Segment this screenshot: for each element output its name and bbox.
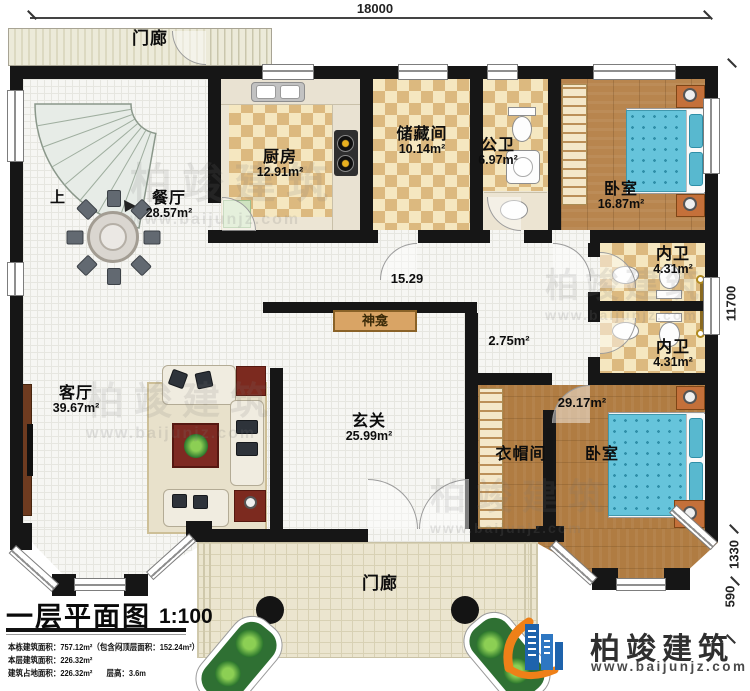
building-stats: 本栋建筑面积：757.12m²（包含闷顶层面积：152.24m²） 本层建筑面积… xyxy=(8,641,199,680)
dining-chair xyxy=(107,190,121,207)
room-label-kitchen: 厨房 12.91m² xyxy=(238,149,322,179)
window xyxy=(703,98,720,174)
bay-window xyxy=(616,578,666,591)
pillow xyxy=(689,152,703,186)
bay-corner xyxy=(124,574,148,596)
room-name: 厨房 xyxy=(238,149,322,166)
kitchen-sink-basin xyxy=(280,85,300,99)
shrine-box: 神龛 xyxy=(333,310,417,332)
stove-burner xyxy=(337,135,354,152)
room-name: 客厅 xyxy=(34,385,118,402)
window xyxy=(593,64,676,80)
lamp-icon xyxy=(683,390,697,404)
wall-corridor-bath xyxy=(588,292,600,322)
cushion xyxy=(236,420,258,434)
brand-logo-icon xyxy=(495,612,573,688)
pillow xyxy=(689,114,703,148)
stats-line-1: 本栋建筑面积：757.12m²（包含闷顶层面积：152.24m²） xyxy=(8,641,199,654)
dimension-right-step: 590 xyxy=(723,567,738,627)
wall-living-foyer xyxy=(270,368,283,542)
wall-kitchen-dining xyxy=(208,79,221,203)
cushion xyxy=(236,442,258,456)
floor-plan-canvas: 神龛 柏竣建筑 www.baijunjz.com 柏竣建筑 www.baijun… xyxy=(0,0,750,691)
room-name: 卧室 xyxy=(579,181,663,198)
stats-height: 层高：3.6m xyxy=(106,668,145,678)
toilet-tank xyxy=(508,107,536,116)
bedroom2-area-label: 29.17m² xyxy=(550,395,614,410)
window xyxy=(487,64,518,80)
porch-column xyxy=(451,596,479,624)
window xyxy=(7,262,24,296)
room-name: 玄关 xyxy=(326,413,412,430)
room-name: 公卫 xyxy=(460,137,536,154)
pillow xyxy=(689,462,703,502)
plant-icon xyxy=(230,624,269,663)
room-label-public-bath: 公卫 6.97m² xyxy=(460,137,536,167)
room-area: 29.17m² xyxy=(558,395,606,410)
window xyxy=(262,64,314,80)
cushion xyxy=(193,495,208,509)
dining-chair xyxy=(107,268,121,285)
niche-area: 2.75m² xyxy=(488,333,529,348)
bay-window xyxy=(74,578,126,591)
wall-bath-bedroom1 xyxy=(548,79,561,230)
stats-line-2: 本层建筑面积：226.32m² xyxy=(8,654,199,667)
dimension-top: 18000 xyxy=(345,1,405,16)
hall-dimension-label: 15.29 xyxy=(378,271,436,286)
bay-corner xyxy=(664,568,690,590)
window xyxy=(703,277,720,335)
cushion xyxy=(195,371,214,390)
wall-top-rooms-d xyxy=(590,230,705,243)
dining-table-center xyxy=(99,223,127,251)
room-name: 门廊 xyxy=(118,30,182,47)
title-rule-thick xyxy=(6,628,186,632)
room-area: 4.31m² xyxy=(641,263,705,276)
room-label-bedroom2: 卧室 xyxy=(570,446,634,463)
plant-icon xyxy=(210,655,247,691)
room-area: 16.87m² xyxy=(579,198,663,211)
room-label-porch-bottom: 门廊 xyxy=(346,575,414,592)
room-label-cloakroom: 衣帽间 xyxy=(486,446,556,463)
pillow xyxy=(689,418,703,458)
room-label-storage: 储藏间 10.14m² xyxy=(379,126,465,156)
kitchen-sink-basin xyxy=(256,85,276,99)
wall-top-rooms-c xyxy=(524,230,552,243)
room-area: 10.14m² xyxy=(379,143,465,156)
room-label-ensuite2: 内卫 4.31m² xyxy=(641,339,705,369)
room-label-foyer: 玄关 25.99m² xyxy=(326,413,412,443)
wall-corridor-bath xyxy=(588,243,600,257)
dimension-right-main: 11700 xyxy=(724,274,739,334)
stairs-up-label: 上 xyxy=(46,189,70,206)
lamp-icon xyxy=(683,88,697,102)
dimension-line-top xyxy=(30,17,710,19)
wall-foyer-bottom-left xyxy=(210,529,368,542)
window xyxy=(398,64,448,80)
room-area: 25.99m² xyxy=(326,430,412,443)
floor-lamp-icon xyxy=(244,496,257,509)
room-area: 39.67m² xyxy=(34,402,118,415)
toilet-tank xyxy=(656,290,682,299)
room-name: 衣帽间 xyxy=(486,446,556,463)
room-name: 卧室 xyxy=(570,446,634,463)
room-label-porch-top: 门廊 xyxy=(118,30,182,47)
room-label-dining: 餐厅 28.57m² xyxy=(127,190,211,220)
brand-url-text: www.baijunjz.com xyxy=(591,659,748,674)
dimension-tick xyxy=(727,58,737,68)
plan-scale: 1:100 xyxy=(159,605,213,629)
room-area: 12.91m² xyxy=(238,166,322,179)
bed-blanket xyxy=(626,110,688,192)
hall-length: 15.29 xyxy=(391,271,424,286)
room-area: 28.57m² xyxy=(127,207,211,220)
wall-bath-divider xyxy=(600,301,705,311)
room-area: 4.31m² xyxy=(641,356,705,369)
room-name: 储藏间 xyxy=(379,126,465,143)
room-name: 上 xyxy=(46,189,70,206)
wall-kitchen-storage xyxy=(360,79,373,243)
room-area: 6.97m² xyxy=(460,154,536,167)
porch-top-steps xyxy=(210,29,271,65)
title-rule-thin xyxy=(6,634,186,635)
room-name: 餐厅 xyxy=(127,190,211,207)
stats-line-3: 建筑占地面积：226.32m²层高：3.6m xyxy=(8,667,199,680)
lamp-icon xyxy=(683,197,697,211)
wall-top-rooms-a xyxy=(208,230,378,243)
side-table xyxy=(236,366,266,396)
room-label-living: 客厅 39.67m² xyxy=(34,385,118,415)
wall-suite-top-b xyxy=(588,373,705,385)
brand-url: www.baijunjz.com xyxy=(591,659,748,674)
stove-burner xyxy=(337,155,354,172)
dining-chair xyxy=(144,231,161,245)
window xyxy=(7,90,24,162)
room-name: 门廊 xyxy=(346,575,414,592)
cushion xyxy=(172,494,187,508)
stats-footprint: 建筑占地面积：226.32m² xyxy=(8,668,92,678)
room-label-ensuite1: 内卫 4.31m² xyxy=(641,246,705,276)
wall-foyer-bottom-right xyxy=(470,529,538,542)
room-label-bedroom1: 卧室 16.87m² xyxy=(579,181,663,211)
room-name: 内卫 xyxy=(641,339,705,356)
shrine-label: 神龛 xyxy=(362,313,388,328)
plant-icon xyxy=(184,434,208,458)
niche-area-label: 2.75m² xyxy=(478,333,540,348)
tv xyxy=(27,424,33,476)
toilet-tank xyxy=(656,313,682,322)
dining-chair xyxy=(67,231,84,245)
room-name: 内卫 xyxy=(641,246,705,263)
wall-suite-top-a xyxy=(478,373,552,385)
